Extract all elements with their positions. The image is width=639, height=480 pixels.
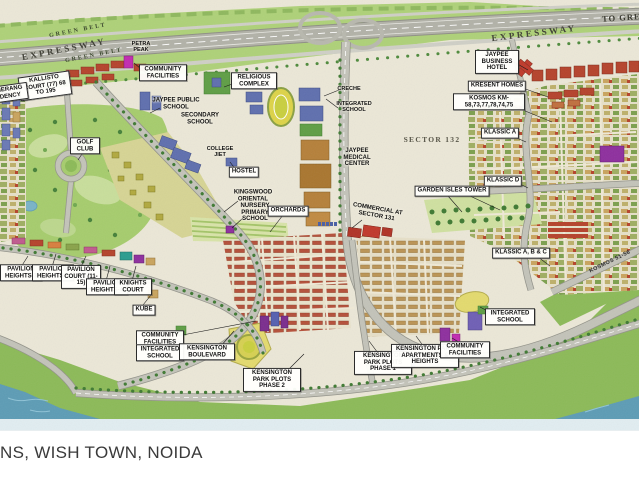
map-label-petra-peak: PETRA PEAK [130, 41, 152, 53]
map-label-to-greater-noida: TO GREATER NOIDA [602, 8, 639, 25]
map-label-kensington-boulevard: KENSINGTON BOULEVARD [179, 343, 235, 360]
map-label-sector-132: SECTOR 132 [404, 136, 461, 144]
map-label-knights-court: KNIGHTS COURT [114, 278, 152, 295]
map-label-commercial-sector-131: COMMERCIAL AT SECTOR 131 [349, 202, 405, 225]
map-label-college-jiet: COLLEGE JIET [204, 146, 236, 158]
map-label-integrated-school-bl: INTEGRATED SCHOOL [136, 344, 184, 361]
map-label-garden-isles-tower: GARDEN ISLES TOWER [415, 186, 490, 197]
map-label-secondary-school: SECONDARY SCHOOL [177, 112, 223, 125]
map-label-religious-complex: RELIGIOUS COMPLEX [231, 72, 277, 89]
map-label-kingswood-oriental: KINGSWOOD ORIENTAL [230, 189, 276, 202]
caption-bar: NS, WISH TOWN, NOIDA [0, 430, 639, 480]
map-label-creche: CRECHE [337, 86, 360, 92]
map-label-jaypee-medical-center: JAYPEE MEDICAL CENTER [339, 148, 375, 168]
map-label-kresent-homes: KRESENT HOMES [468, 81, 526, 92]
map-label-boomerang-residency: BOOMERANG RESIDENCY [0, 82, 29, 106]
map-label-kosmos-51-56: KOSMOS 51-56 [588, 249, 631, 274]
map-label-jaypee-public-school: JAYPEE PUBLIC SCHOOL [151, 97, 201, 110]
map-label-klassic-abc: KLASSIC A, B & C [492, 248, 550, 259]
master-plan-map: GREEN BELTEXPRESSWAYGREEN BELTPETRA PEAK… [0, 0, 639, 430]
map-labels: GREEN BELTEXPRESSWAYGREEN BELTPETRA PEAK… [0, 0, 639, 430]
caption-text: NS, WISH TOWN, NOIDA [0, 443, 203, 463]
map-label-hostel: HOSTEL [229, 167, 259, 178]
map-label-kosmos-km: KOSMOS KM-58,73,77,78,74,75 [453, 93, 525, 110]
map-label-orchards: ORCHARDS [268, 206, 309, 217]
map-label-jaypee-business-hotel: JAYPEE BUSINESS HOTEL [475, 50, 519, 74]
map-label-kensington-park-plots-2: KENSINGTON PARK PLOTS PHASE 2 [243, 368, 301, 392]
map-label-golf-club: GOLF CLUB [70, 137, 100, 154]
map-label-community-facilities-br: COMMUNITY FACILITIES [440, 341, 490, 358]
map-label-klassic-a: KLASSIC A [481, 128, 519, 139]
map-label-integrated-school-top: INTEGRATED SCHOOL [333, 101, 375, 113]
map-label-expressway-right: EXPRESSWAY [491, 23, 577, 43]
map-label-community-facilities-top: COMMUNITY FACILITIES [139, 64, 187, 81]
map-label-kube: KUBE [132, 305, 155, 316]
screenshot-root: GREEN BELTEXPRESSWAYGREEN BELTPETRA PEAK… [0, 0, 639, 480]
map-label-klassic-d: KLASSIC D [484, 176, 522, 187]
map-label-integrated-school-br: INTEGRATED SCHOOL [485, 308, 535, 325]
